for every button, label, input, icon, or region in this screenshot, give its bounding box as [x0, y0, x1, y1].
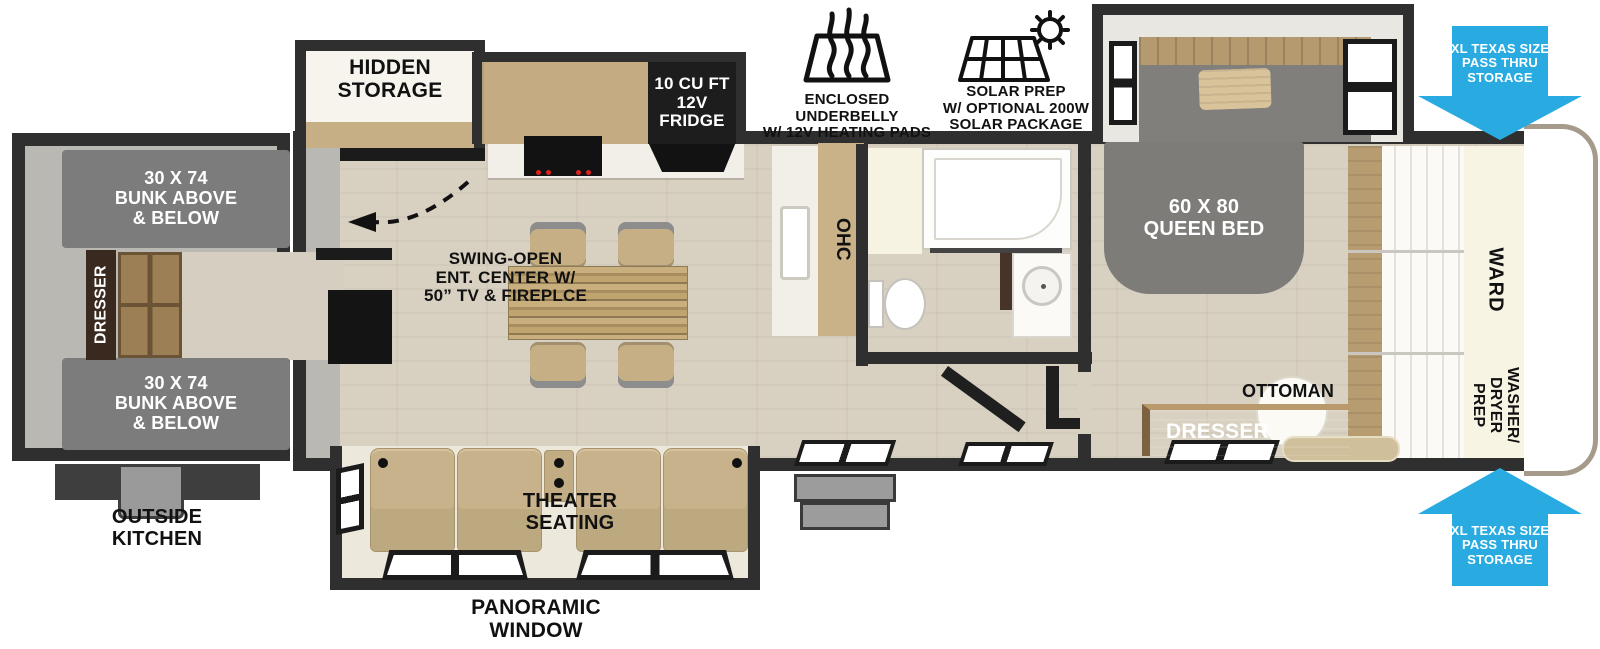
wardrobe: [1348, 146, 1464, 458]
armrest-cupholder: [732, 458, 742, 468]
wardrobe-shelf: [1348, 352, 1464, 355]
range-hood: [648, 142, 736, 172]
bunk-bottom-label: 30 X 74 BUNK ABOVE & BELOW: [115, 374, 237, 433]
toilet-tank: [868, 280, 884, 328]
bunk-bed-bottom: 30 X 74 BUNK ABOVE & BELOW: [62, 358, 290, 450]
entry-window: [958, 442, 1054, 466]
hallway-floor: [182, 252, 344, 360]
underbelly-label: ENCLOSED UNDERBELLY W/ 12V HEATING PADS: [752, 92, 942, 142]
entry-window: [794, 440, 896, 466]
queen-bed: 60 X 80 QUEEN BED: [1104, 142, 1304, 294]
pillow: [1198, 68, 1271, 110]
front-cap: [1524, 124, 1598, 476]
theater-side-window: [336, 463, 364, 535]
bunk-dresser-unit: [118, 252, 182, 358]
bedroom-window: [1343, 39, 1397, 135]
theater-seating-label: THEATER SEATING: [470, 490, 670, 534]
pass-thru-bottom-label: XL TEXAS SIZE PASS THRU STORAGE: [1430, 524, 1570, 567]
bath-left-wall: [856, 144, 868, 366]
headboard: [1139, 37, 1371, 65]
cupholder: [554, 478, 564, 488]
heating-pads-icon: [792, 6, 902, 88]
hidden-storage-label: HIDDEN STORAGE: [305, 56, 475, 102]
wardrobe-shelf: [1348, 250, 1464, 253]
ward-label-box: WARD: [1466, 210, 1526, 350]
armrest-cupholder: [378, 458, 388, 468]
bunk-bed-top: 30 X 74 BUNK ABOVE & BELOW: [62, 150, 290, 248]
pass-thru-top-label: XL TEXAS SIZE PASS THRU STORAGE: [1430, 42, 1570, 85]
toilet-bowl: [884, 278, 926, 330]
ward-label: WARD: [1485, 247, 1507, 312]
arrow-head-down: [1418, 96, 1582, 140]
swing-open-label: SWING-OPEN ENT. CENTER W/ 50” TV & FIREP…: [398, 250, 613, 306]
dining-chair: [618, 222, 674, 268]
arrow-head-up: [1418, 468, 1582, 514]
tv: [328, 290, 392, 364]
shower-pan: [934, 158, 1062, 240]
panoramic-window-glass: [382, 550, 528, 580]
vanity-side: [1000, 252, 1012, 310]
bath-cabinet: [868, 148, 922, 254]
ohc-label: OHC: [831, 218, 852, 261]
ottoman-label: OTTOMAN: [1228, 382, 1348, 402]
stove-knob: [546, 170, 551, 175]
solar-panel-sun-icon: [958, 10, 1074, 86]
fridge: 10 CU FT 12V FRIDGE: [648, 62, 736, 144]
bedroom-dresser-label: DRESSER: [1166, 420, 1269, 443]
shower-threshold: [930, 248, 1062, 253]
bedroom-slide: [1092, 4, 1414, 142]
entry-step: [800, 502, 890, 530]
wardrobe-wood-column: [1348, 146, 1382, 458]
solar-label: SOLAR PREP W/ OPTIONAL 200W SOLAR PACKAG…: [938, 84, 1094, 134]
entry-step: [794, 474, 896, 502]
bunk-dresser-label: DRESSER: [92, 266, 110, 345]
rv-floorplan: 30 X 74 BUNK ABOVE & BELOW 30 X 74 BUNK …: [0, 0, 1600, 649]
stove-knob: [536, 170, 541, 175]
hidden-storage-cabinet: [306, 122, 474, 148]
washer-dryer-prep-label: WASHER/ DRYER PREP: [1470, 367, 1520, 443]
dining-chair: [530, 342, 586, 388]
ent-center-shelf: [316, 248, 392, 260]
dining-chair: [618, 342, 674, 388]
bunk-top-label: 30 X 74 BUNK ABOVE & BELOW: [115, 169, 237, 228]
panoramic-window-glass: [576, 550, 734, 580]
entry-door-frame-foot: [1046, 418, 1080, 429]
bath-bottom-wall: [856, 352, 1092, 364]
queen-bed-label: 60 X 80 QUEEN BED: [1144, 196, 1265, 240]
stove-knob: [576, 170, 581, 175]
hidden-storage-counter: [340, 148, 485, 161]
outside-kitchen-label: OUTSIDE KITCHEN: [72, 506, 242, 550]
bedroom-window: [1109, 41, 1137, 125]
vanity-faucet: [1041, 284, 1046, 289]
kitchen-sink: [780, 206, 810, 280]
bath-vanity: [1012, 252, 1072, 338]
bedroom-dresser: DRESSER: [1142, 404, 1350, 456]
bunk-dresser-label-strip: DRESSER: [86, 250, 116, 360]
shower: [922, 148, 1072, 250]
cupholder: [554, 458, 564, 468]
fridge-label: 10 CU FT 12V FRIDGE: [654, 75, 729, 131]
swing-open-arrow-icon: [340, 172, 490, 244]
panoramic-window-label: PANORAMIC WINDOW: [430, 596, 642, 642]
stove-knob: [586, 170, 591, 175]
